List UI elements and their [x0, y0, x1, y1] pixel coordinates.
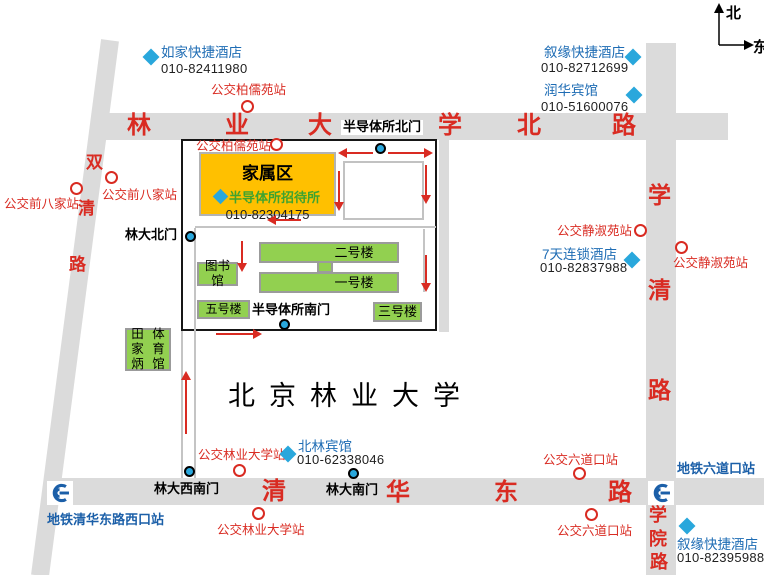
- road-name-char: 学: [438, 114, 462, 138]
- hotel-phone: 010-82712699: [541, 61, 628, 76]
- bus-stop-label: 公交柏儒苑站: [196, 139, 271, 153]
- hotel-diamond-icon: [143, 49, 160, 66]
- inner-road-line: [194, 228, 196, 478]
- gate-icon: [279, 319, 290, 330]
- road-name-char: 大: [308, 114, 332, 138]
- bus-stop-label: 公交六道口站: [543, 453, 618, 467]
- direction-arrow: [425, 165, 427, 195]
- guesthouse-name: 半导体所招待所: [229, 187, 320, 206]
- bus-stop-label: 公交静淑苑站: [673, 256, 748, 270]
- building-label: 三号楼: [378, 304, 417, 320]
- road-name-char: 路: [612, 114, 636, 138]
- direction-arrow: [425, 255, 427, 283]
- hotel-name: 如家快捷酒店: [161, 45, 242, 61]
- building-label: 一号楼: [334, 275, 373, 291]
- gate-icon: [348, 468, 359, 479]
- building: 图书馆: [197, 262, 238, 286]
- road-name-char: 路: [608, 481, 632, 505]
- family-area-box: 家属区 半导体所招待所 010-82304175: [199, 152, 336, 216]
- direction-arrow: [276, 219, 301, 221]
- subway-station-label: 地铁六道口站: [677, 462, 755, 477]
- road-name-char: 学: [649, 506, 667, 524]
- bus-stop-icon: [675, 241, 688, 254]
- road-name-char: 林: [127, 114, 151, 138]
- building-label: 五号楼: [205, 302, 241, 316]
- gate-label: 半导体所北门: [341, 120, 423, 135]
- hotel-diamond-icon: [679, 518, 696, 535]
- bus-stop-label: 公交六道口站: [557, 524, 632, 538]
- road-name-char: 路: [69, 256, 86, 273]
- road-name-char: 华: [386, 481, 410, 505]
- hotel-phone: 010-82411980: [161, 62, 248, 77]
- hotel-diamond-icon: [213, 189, 229, 205]
- building-label: 体育馆: [148, 327, 169, 372]
- bus-stop-icon: [252, 507, 265, 520]
- hotel-name: 润华宾馆: [544, 83, 598, 99]
- inner-road-line: [195, 226, 436, 228]
- road-name-char: 清: [648, 279, 671, 302]
- building: 三号楼: [373, 302, 422, 322]
- university-name: 北京林业大学: [228, 374, 474, 413]
- campus-area-map: 家属区 半导体所招待所 010-82304175 北京林业大学 北 东 林业大学…: [0, 0, 764, 575]
- building: 一号楼: [259, 272, 399, 293]
- road-stub-east-of-compound: [439, 140, 449, 332]
- bus-stop-icon: [585, 508, 598, 521]
- hotel-phone: 010-82837988: [540, 261, 627, 276]
- compass-east-label: 东: [753, 36, 764, 57]
- bus-stop-icon: [70, 182, 83, 195]
- bus-stop-icon: [573, 467, 586, 480]
- direction-arrow: [388, 152, 424, 154]
- direction-arrow: [241, 241, 243, 263]
- gate-label: 林大西南门: [154, 482, 219, 497]
- road-name-char: 清: [262, 480, 286, 504]
- hotel-phone: 010-82395988: [677, 551, 764, 566]
- road-name-char: 院: [649, 530, 667, 548]
- hotel-phone: 010-62338046: [297, 453, 384, 468]
- direction-arrow: [185, 380, 187, 434]
- gate-icon: [185, 231, 196, 242]
- hotel-phone: 010-51600076: [541, 100, 628, 115]
- bus-stop-label: 公交前八家站: [4, 197, 79, 211]
- subway-station-label: 地铁清华东路西口站: [47, 513, 164, 528]
- building: 二号楼: [259, 242, 399, 263]
- road-name-char: 路: [650, 553, 668, 571]
- road-name-char: 清: [78, 200, 95, 217]
- bus-stop-icon: [233, 464, 246, 477]
- compass: 北 东: [694, 0, 764, 60]
- subway-logo-icon: [648, 481, 674, 505]
- inner-road-line: [181, 331, 183, 478]
- road-name-char: 学: [648, 184, 671, 207]
- road-name-char: 双: [86, 154, 103, 171]
- building-label: 图书馆: [199, 259, 236, 289]
- bus-stop-label: 公交林业大学站: [217, 523, 305, 537]
- gate-label: 半导体所南门: [252, 303, 330, 318]
- bus-stop-icon: [105, 171, 118, 184]
- family-area-label: 家属区: [201, 159, 334, 184]
- bus-stop-label: 公交静淑苑站: [557, 224, 632, 238]
- bus-stop-label: 公交柏儒苑站: [211, 83, 286, 97]
- bus-stop-label: 公交前八家站: [102, 188, 177, 202]
- gate-label: 林大南门: [326, 483, 378, 498]
- direction-arrow: [338, 171, 340, 202]
- gate-icon: [184, 466, 195, 477]
- gate-label: 林大北门: [125, 228, 177, 243]
- bus-stop-icon: [270, 138, 283, 151]
- subway-logo-icon: [47, 481, 73, 505]
- bus-stop-label: 公交林业大学站: [198, 448, 286, 462]
- hotel-name: 叙缘快捷酒店: [544, 45, 625, 61]
- compound-courtyard: [343, 161, 424, 220]
- compass-north-label: 北: [726, 2, 741, 23]
- building: 田家炳体育馆: [125, 328, 171, 371]
- bus-stop-icon: [634, 224, 647, 237]
- building-label: 二号楼: [334, 245, 373, 261]
- road-name-char: 路: [648, 379, 671, 402]
- gate-icon: [375, 143, 386, 154]
- road-name-char: 东: [494, 481, 518, 505]
- bus-stop-icon: [241, 100, 254, 113]
- road-name-char: 北: [517, 114, 541, 138]
- road-name-char: 业: [225, 114, 249, 138]
- building-label: 田家炳: [127, 327, 148, 372]
- direction-arrow: [347, 152, 373, 154]
- building: 五号楼: [197, 300, 250, 319]
- direction-arrow: [216, 333, 253, 335]
